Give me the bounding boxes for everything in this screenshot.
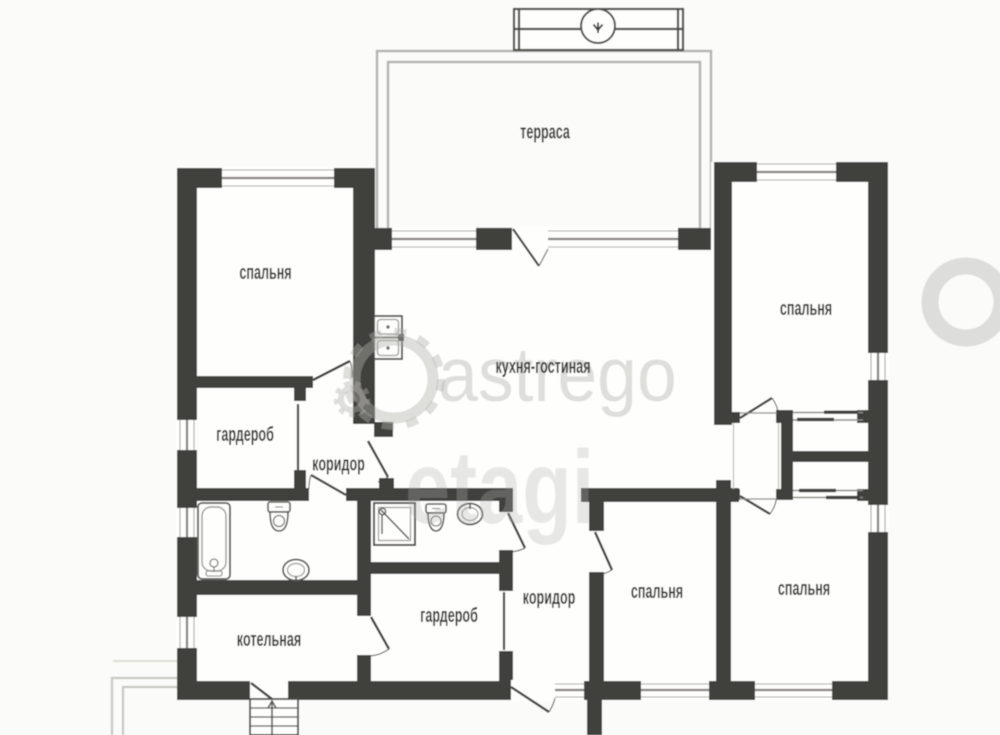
svg-text:кухня-гостиная: кухня-гостиная (495, 355, 590, 378)
svg-text:спальня: спальня (631, 580, 683, 603)
svg-text:гардероб: гардероб (216, 423, 274, 446)
svg-text:терраса: терраса (520, 121, 570, 144)
svg-text:спальня: спальня (239, 261, 291, 284)
svg-text:коридор: коридор (312, 453, 365, 476)
svg-text:коридор: коридор (523, 586, 576, 609)
svg-text:спальня: спальня (780, 297, 832, 320)
svg-text:котельная: котельная (237, 628, 301, 651)
svg-text:спальня: спальня (778, 577, 830, 600)
svg-text:гардероб: гардероб (420, 604, 478, 627)
svg-text:etagi: etagi (405, 429, 594, 545)
